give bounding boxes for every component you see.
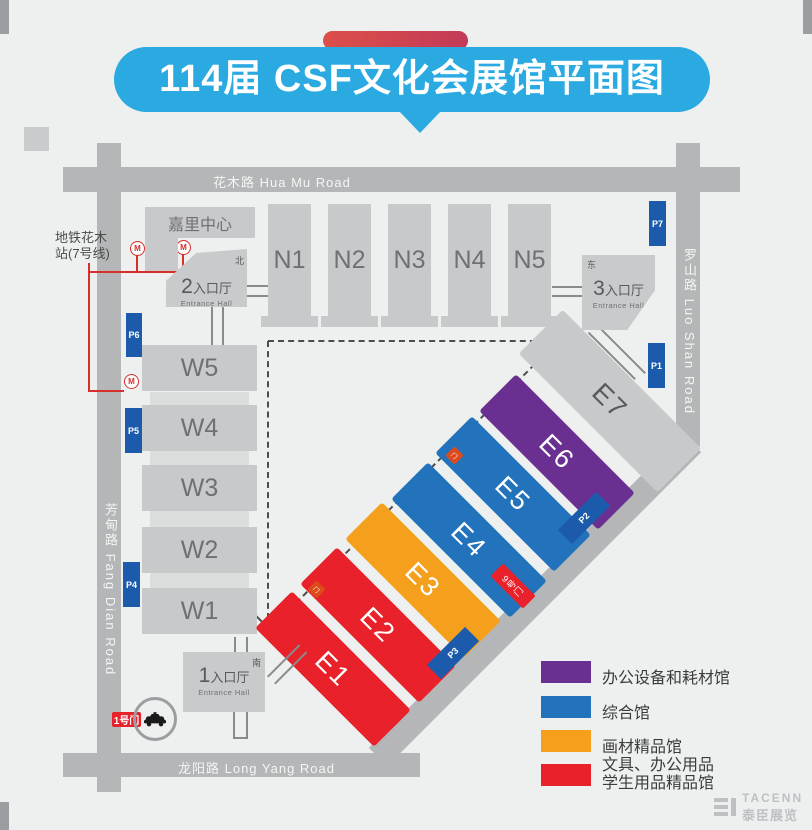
corridor-line [234,637,236,652]
metro-line [88,263,90,391]
hall-connector [150,451,249,465]
small-block [24,127,49,151]
metro-line [136,254,138,272]
legend-swatch-orange [541,730,591,752]
hall-w1: W1 [142,588,257,634]
watermark-en: TACENN [742,791,803,805]
watermark: TACENN 泰臣展览 [714,791,803,824]
kerry-center-wing [145,238,178,271]
legend-swatch-red [541,764,591,786]
legend-label: 画材精品馆 [602,733,682,757]
metro-station-icon: M [176,240,191,255]
scan-corner-mark [803,0,812,34]
corridor-line [552,286,582,288]
dashed-boundary-top [268,340,556,342]
taxi-stand-icon [133,697,177,741]
corridor-line [552,295,582,297]
hall-connector [150,571,249,588]
corridor-line [247,285,268,287]
taxi-car-icon [142,712,168,727]
hall-connector [150,511,249,527]
direction-marker-north: 北 [235,254,244,267]
hall-base [321,316,378,327]
corridor-line [233,712,235,738]
hall-w4: W4 [142,405,257,451]
watermark-cn: 泰臣展览 [742,805,803,824]
metro-line [88,390,124,392]
corridor-line [233,737,248,739]
legend-swatch-purple [541,661,591,683]
legend-swatch-blue [541,696,591,718]
hall-base [261,316,318,327]
parking-p7: P7 [649,201,666,246]
hall-n4: N4 [448,204,491,316]
hall-connector [150,392,249,405]
hall-w2: W2 [142,527,257,573]
metro-station-icon: M [124,374,139,389]
corridor-line [246,712,248,738]
hall-base [381,316,438,327]
road-label-fangdian: 芳甸路 Fang Dian Road [101,503,120,676]
road-label-longyang: 龙阳路 Long Yang Road [178,758,335,777]
legend-label: 文具、办公用品 学生用品精品馆 [602,757,714,793]
hall-n2: N2 [328,204,371,316]
metro-station-icon: M [130,241,145,256]
kerry-center-building: 嘉里中心 [145,207,255,238]
hall-w5: W5 [142,345,257,391]
hall-n1: N1 [268,204,311,316]
corridor-line [211,307,213,345]
parking-p4: P4 [123,562,140,607]
corridor-line [246,637,248,652]
direction-marker-east: 东 [587,258,596,271]
road-huamu [63,167,740,192]
metro-station-label: 地铁花木 站(7号线) [55,230,117,262]
page-title: 114届 CSF文化会展馆平面图 [114,47,710,112]
hall-n3: N3 [388,204,431,316]
corridor-line [222,307,224,345]
hall-n5: N5 [508,204,551,316]
scan-corner-mark [0,0,9,34]
corridor-line [247,295,268,297]
scan-corner-mark [0,802,9,830]
road-label-huamu: 花木路 Hua Mu Road [213,172,351,191]
legend-label: 综合馆 [602,699,650,723]
legend-label: 办公设备和耗材馆 [602,664,730,688]
watermark-logo-icon [714,796,738,820]
parking-p5: P5 [125,408,142,453]
hall-base [441,316,498,327]
direction-marker-south: 南 [252,656,261,669]
hall-w3: W3 [142,465,257,511]
exhibition-floor-plan: 114届 CSF文化会展馆平面图 花木路 Hua Mu Road 芳甸路 Fan… [0,0,812,830]
road-label-luoshan: 罗山路 Luo Shan Road [680,248,699,415]
parking-p1: P1 [648,343,665,388]
title-bubble-tail [398,110,442,133]
parking-p6: P6 [126,313,142,357]
dashed-boundary-left [267,341,269,619]
